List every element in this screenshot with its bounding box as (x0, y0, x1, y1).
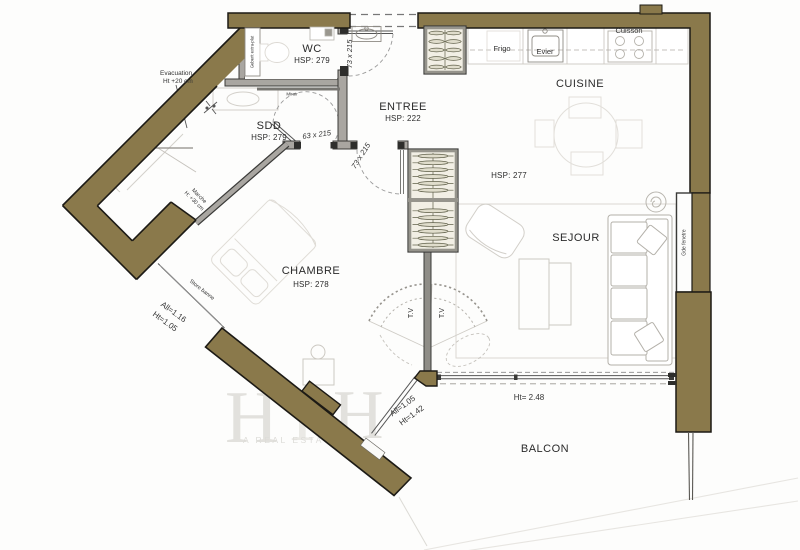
svg-text:HSP: 277: HSP: 277 (491, 171, 527, 180)
svg-text:Frigo: Frigo (493, 44, 510, 53)
svg-text:Miroir: Miroir (286, 92, 298, 97)
svg-text:Ht +20 cm: Ht +20 cm (163, 78, 193, 85)
svg-text:Geberit extra-plat: Geberit extra-plat (250, 35, 255, 68)
svg-text:73 x 215: 73 x 215 (345, 39, 354, 69)
svg-text:T.V: T.V (408, 308, 415, 318)
svg-text:SEJOUR: SEJOUR (552, 232, 600, 244)
svg-text:HSP: 222: HSP: 222 (385, 114, 421, 123)
svg-text:HSP: 279: HSP: 279 (294, 56, 330, 65)
svg-text:Evier: Evier (536, 47, 554, 56)
svg-text:Evacuation: Evacuation (160, 70, 193, 77)
svg-text:HSP: 278: HSP: 278 (293, 280, 329, 289)
svg-text:SDD: SDD (257, 120, 282, 132)
svg-text:Ht= 2.48: Ht= 2.48 (514, 393, 545, 402)
svg-text:CHAMBRE: CHAMBRE (282, 265, 341, 277)
svg-text:T.V: T.V (439, 308, 446, 318)
svg-text:HSP: 279: HSP: 279 (251, 133, 287, 142)
svg-text:ENTREE: ENTREE (379, 101, 427, 113)
svg-text:Gde fenetre: Gde fenetre (682, 229, 688, 256)
svg-text:Cuisson: Cuisson (615, 26, 642, 35)
svg-text:BALCON: BALCON (521, 443, 569, 455)
svg-text:CUISINE: CUISINE (556, 78, 604, 90)
svg-text:WC: WC (302, 43, 321, 55)
